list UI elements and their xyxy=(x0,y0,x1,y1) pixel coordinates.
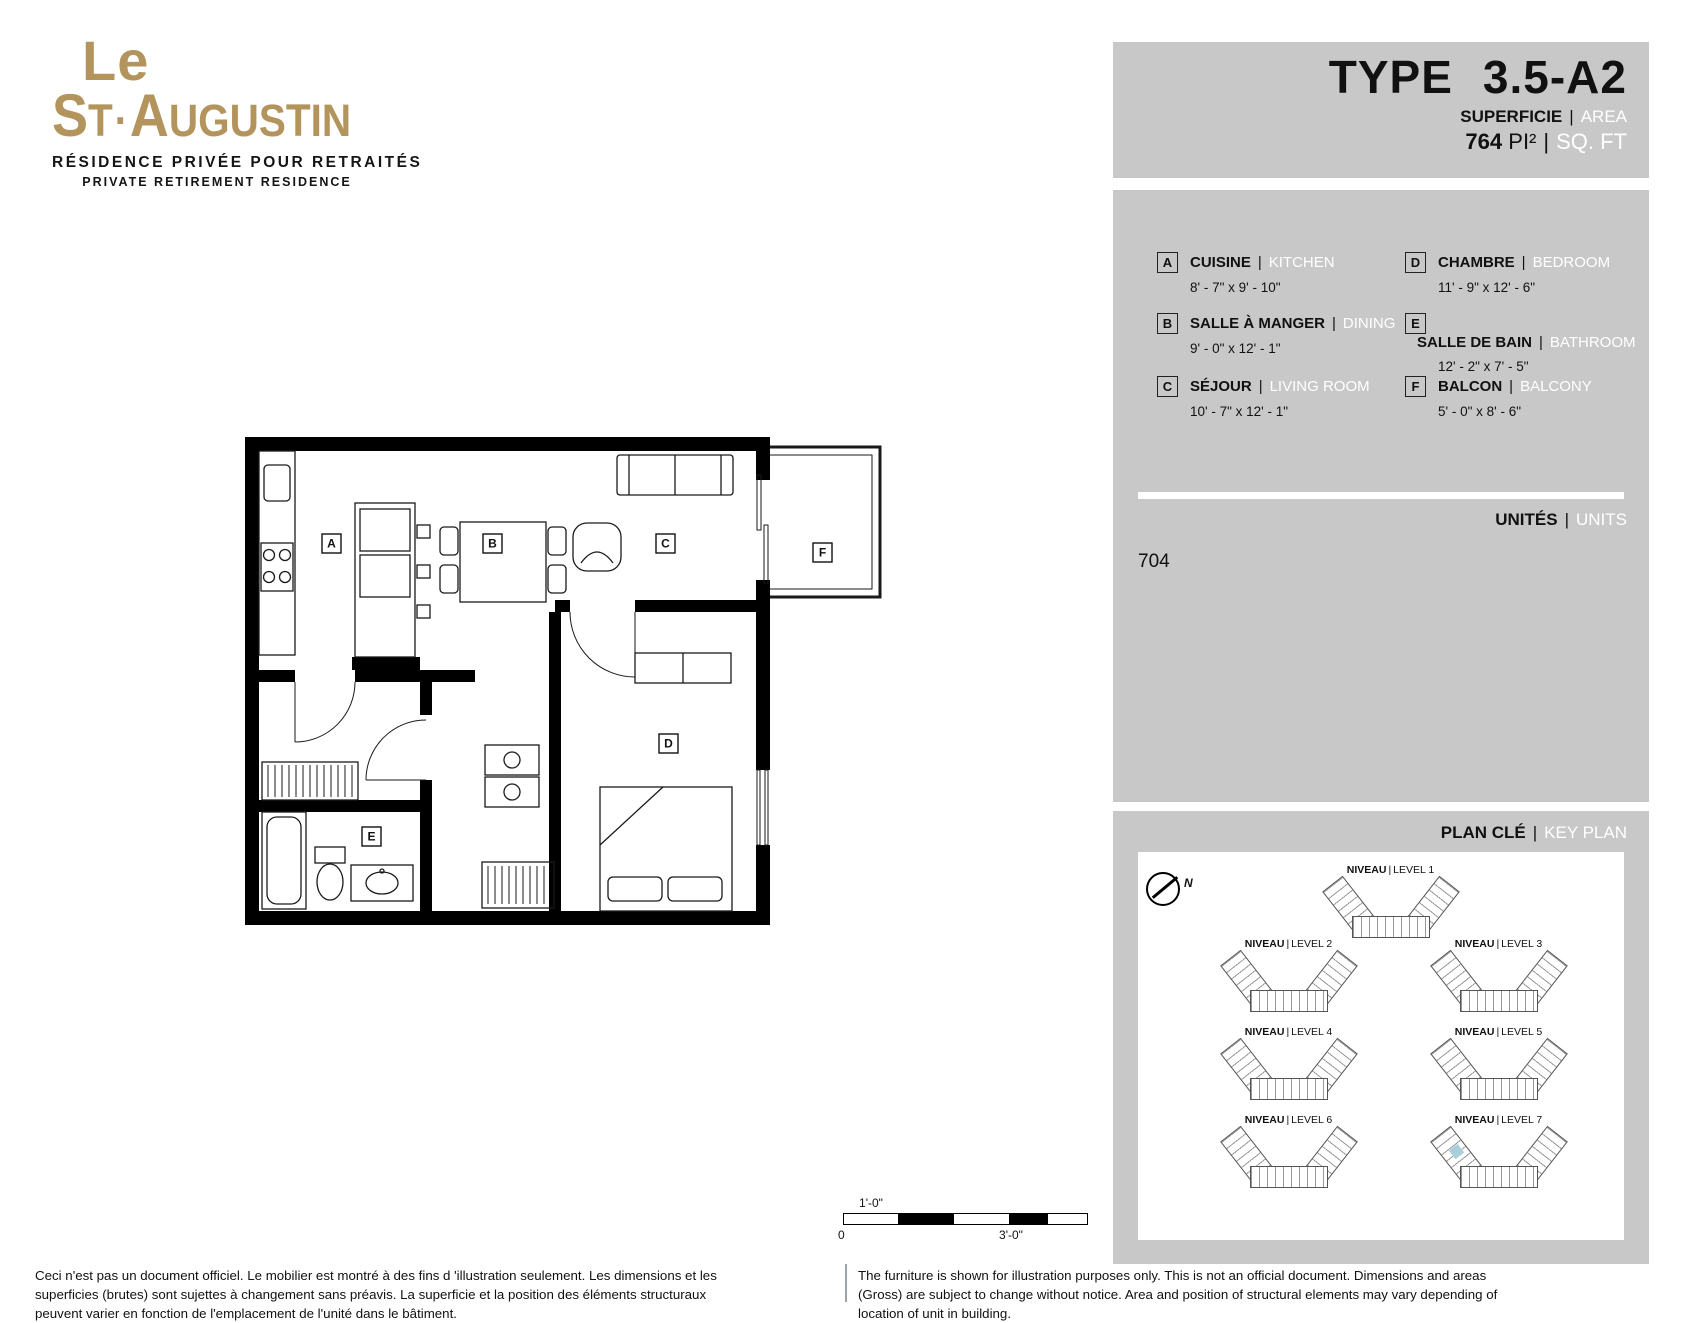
legend-item-living: CSÉJOUR|LIVING ROOM 10' - 7" x 12' - 1" xyxy=(1157,376,1402,419)
legend-item-bathroom: ESALLE DE BAIN|BATHROOM 12' - 2" x 7' - … xyxy=(1405,313,1650,374)
plan-label-e: E xyxy=(367,830,375,844)
keyplan-level-6: NIVEAU|LEVEL 6 xyxy=(1206,1114,1371,1193)
level-5-footprint xyxy=(1424,1041,1574,1105)
legend-item-bedroom: DCHAMBRE|BEDROOM 11' - 9" x 12' - 6" xyxy=(1405,252,1650,295)
plan-bathroom xyxy=(262,812,413,909)
compass-needle-icon xyxy=(1152,876,1178,899)
legend-panel: ACUISINE|KITCHEN 8' - 7" x 9' - 10" DCHA… xyxy=(1113,190,1649,802)
plan-label-a: A xyxy=(327,537,336,551)
level-3-footprint xyxy=(1424,953,1574,1017)
area-heading: SUPERFICIE|AREA xyxy=(1113,107,1627,127)
units-heading: UNITÉS|UNITS xyxy=(1495,510,1627,530)
plan-label-c: C xyxy=(661,537,670,551)
plan-bedroom xyxy=(600,653,732,911)
area-value: 764 PI²|SQ. FT xyxy=(1113,129,1627,155)
keyplan-level-7: NIVEAU|LEVEL 7 xyxy=(1416,1114,1581,1193)
disclaimer-english: The furniture is shown for illustration … xyxy=(858,1266,1518,1323)
legend-item-kitchen: ACUISINE|KITCHEN 8' - 7" x 9' - 10" xyxy=(1157,252,1402,295)
logo-wordmark: ST·AUGUSTIN xyxy=(52,86,349,146)
key-plan-title: PLAN CLÉ|KEY PLAN xyxy=(1441,823,1627,843)
plan-label-d: D xyxy=(664,737,673,751)
plan-label-b: B xyxy=(488,537,497,551)
level-1-footprint xyxy=(1316,879,1466,943)
level-6-footprint xyxy=(1214,1129,1364,1193)
scale-bar: 1'-0" 0 3'-0" xyxy=(843,1196,1093,1246)
disclaimer-french: Ceci n'est pas un document officiel. Le … xyxy=(35,1266,755,1323)
legend-dims-bedroom: 11' - 9" x 12' - 6" xyxy=(1438,280,1650,295)
keyplan-level-4: NIVEAU|LEVEL 4 xyxy=(1206,1026,1371,1105)
keyplan-level-1: NIVEAU|LEVEL 1 xyxy=(1308,864,1473,943)
level-4-footprint xyxy=(1214,1041,1364,1105)
logo-tagline-fr: RÉSIDENCE PRIVÉE POUR RETRAITÉS xyxy=(52,154,382,172)
unit-type-title: TYPE3.5-A2 xyxy=(1113,50,1627,104)
logo-tagline-en: PRIVATE RETIREMENT RESIDENCE xyxy=(52,175,382,189)
north-compass-icon: N xyxy=(1146,872,1180,906)
plan-dining xyxy=(440,522,566,602)
units-divider xyxy=(1138,492,1624,499)
legend-dims-bathroom: 12' - 2" x 7' - 5" xyxy=(1438,359,1650,374)
scale-label-one-foot: 1'-0" xyxy=(843,1196,899,1210)
plan-balcony xyxy=(757,447,880,597)
legend-dims-dining: 9' - 0" x 12' - 1" xyxy=(1190,341,1402,356)
level-7-footprint xyxy=(1424,1129,1574,1193)
plan-label-f: F xyxy=(819,546,826,560)
key-plan-panel: PLAN CLÉ|KEY PLAN N NIVEAU|LEVEL 1 NIVEA… xyxy=(1113,811,1649,1264)
level-2-footprint xyxy=(1214,953,1364,1017)
legend-dims-living: 10' - 7" x 12' - 1" xyxy=(1190,404,1402,419)
keyplan-level-5: NIVEAU|LEVEL 5 xyxy=(1416,1026,1581,1105)
legend-letter-c: C xyxy=(1157,376,1178,397)
legend-letter-a: A xyxy=(1157,252,1178,273)
legend-dims-kitchen: 8' - 7" x 9' - 10" xyxy=(1190,280,1402,295)
compass-north-label: N xyxy=(1184,876,1193,890)
keyplan-level-2: NIVEAU|LEVEL 2 xyxy=(1206,938,1371,1017)
floor-plan: A B C D E F xyxy=(235,425,890,940)
legend-letter-e: E xyxy=(1405,313,1426,334)
legend-letter-d: D xyxy=(1405,252,1426,273)
key-plan-canvas: N NIVEAU|LEVEL 1 NIVEAU|LEVEL 2 NIVEAU|L… xyxy=(1138,852,1624,1240)
plan-room-labels: A B C D E F xyxy=(322,534,832,846)
brand-logo: Le ST·AUGUSTIN RÉSIDENCE PRIVÉE POUR RET… xyxy=(52,36,382,189)
plan-window xyxy=(757,770,768,845)
legend-dims-balcony: 5' - 0" x 8' - 6" xyxy=(1438,404,1650,419)
scale-label-zero: 0 xyxy=(838,1228,845,1242)
unit-type-value: 3.5-A2 xyxy=(1483,51,1627,103)
keyplan-level-3: NIVEAU|LEVEL 3 xyxy=(1416,938,1581,1017)
legend-letter-b: B xyxy=(1157,313,1178,334)
scale-label-three-feet: 3'-0" xyxy=(991,1228,1031,1242)
unit-type-header-panel: TYPE3.5-A2 SUPERFICIE|AREA 764 PI²|SQ. F… xyxy=(1113,42,1649,178)
disclaimer-divider xyxy=(845,1264,847,1302)
plan-walls xyxy=(245,437,770,925)
plan-kitchen xyxy=(259,451,430,657)
plan-doors xyxy=(295,612,635,780)
legend-item-dining: BSALLE À MANGER|DINING 9' - 0" x 12' - 1… xyxy=(1157,313,1402,356)
plan-living xyxy=(573,455,733,571)
logo-dot: · xyxy=(113,95,130,146)
legend-item-balcony: FBALCON|BALCONY 5' - 0" x 8' - 6" xyxy=(1405,376,1650,419)
logo-le: Le xyxy=(82,36,382,86)
unit-number: 704 xyxy=(1138,551,1170,573)
legend-letter-f: F xyxy=(1405,376,1426,397)
